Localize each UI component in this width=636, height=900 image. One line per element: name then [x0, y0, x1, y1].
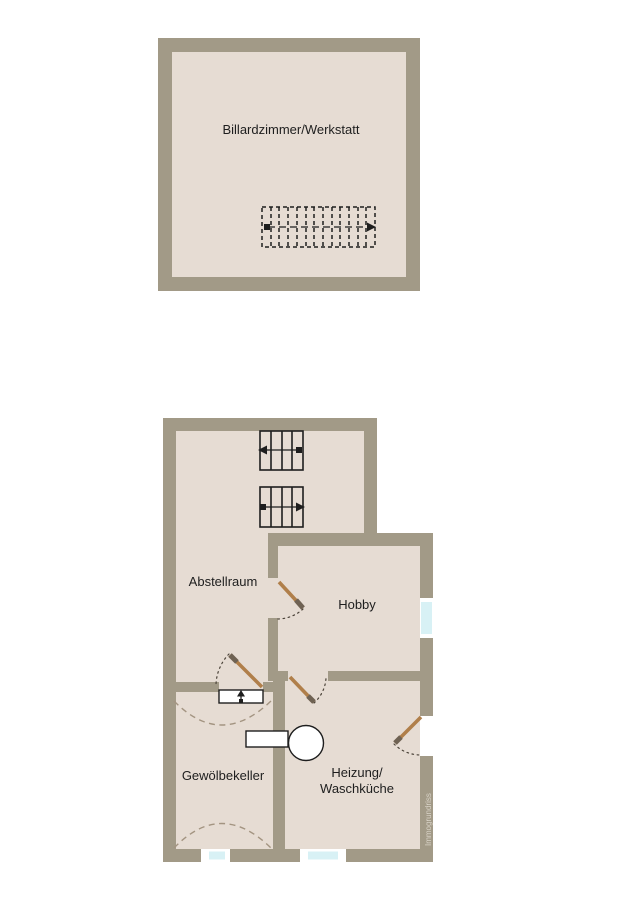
wall-right-seg1: [420, 533, 433, 598]
room-label-hobby: Hobby: [338, 597, 376, 612]
step-box: [219, 690, 263, 703]
floor-plan-canvas: Billardzimmer/Werkstatt: [0, 0, 636, 900]
billiard-room-floor: [172, 52, 406, 277]
wall-storage-cellar-seg2: [263, 682, 285, 692]
room-label-heating-line1: Heizung/: [331, 765, 383, 780]
wall-top: [163, 418, 377, 431]
wall-bottom-seg2: [230, 849, 300, 862]
wall-upper-right: [364, 418, 377, 545]
room-label-vault-cellar: Gewölbekeller: [182, 768, 265, 783]
exterior-door-opening: [420, 716, 433, 756]
window-glass: [209, 852, 225, 860]
stair-start-marker: [296, 447, 302, 453]
boiler-duct: [246, 731, 288, 747]
wall-hobby-top: [268, 533, 433, 546]
boiler-tank: [289, 726, 324, 761]
window-glass: [421, 602, 432, 634]
window-cellar-south: [201, 849, 230, 862]
room-label-storage: Abstellraum: [189, 574, 258, 589]
watermark: Immogrundriss: [424, 793, 433, 846]
wall-bottom-seg1: [163, 849, 201, 862]
wall-left: [163, 418, 176, 862]
window-glass: [308, 852, 338, 860]
wall-hobby-heating-seg2: [328, 671, 433, 681]
upper-floor-plan: Billardzimmer/Werkstatt: [158, 38, 420, 291]
stair-start-marker: [264, 224, 270, 230]
wall-storage-hobby-seg1: [268, 546, 278, 578]
window-hobby-east: [420, 598, 433, 638]
window-heating-south: [300, 849, 346, 862]
wall-bottom-seg3: [346, 849, 433, 862]
wall-storage-cellar-seg1: [163, 682, 219, 692]
stair-start-marker: [260, 504, 266, 510]
wall-storage-hobby-seg2: [268, 618, 278, 671]
room-label-heating-line2: Waschküche: [320, 781, 394, 796]
wall-cellar-heating: [273, 671, 285, 849]
step-arrow-tail: [239, 699, 243, 703]
room-label-billiard: Billardzimmer/Werkstatt: [222, 122, 359, 137]
lower-floor-plan: Abstellraum Hobby Gewölbekeller Heizung/…: [163, 418, 433, 862]
